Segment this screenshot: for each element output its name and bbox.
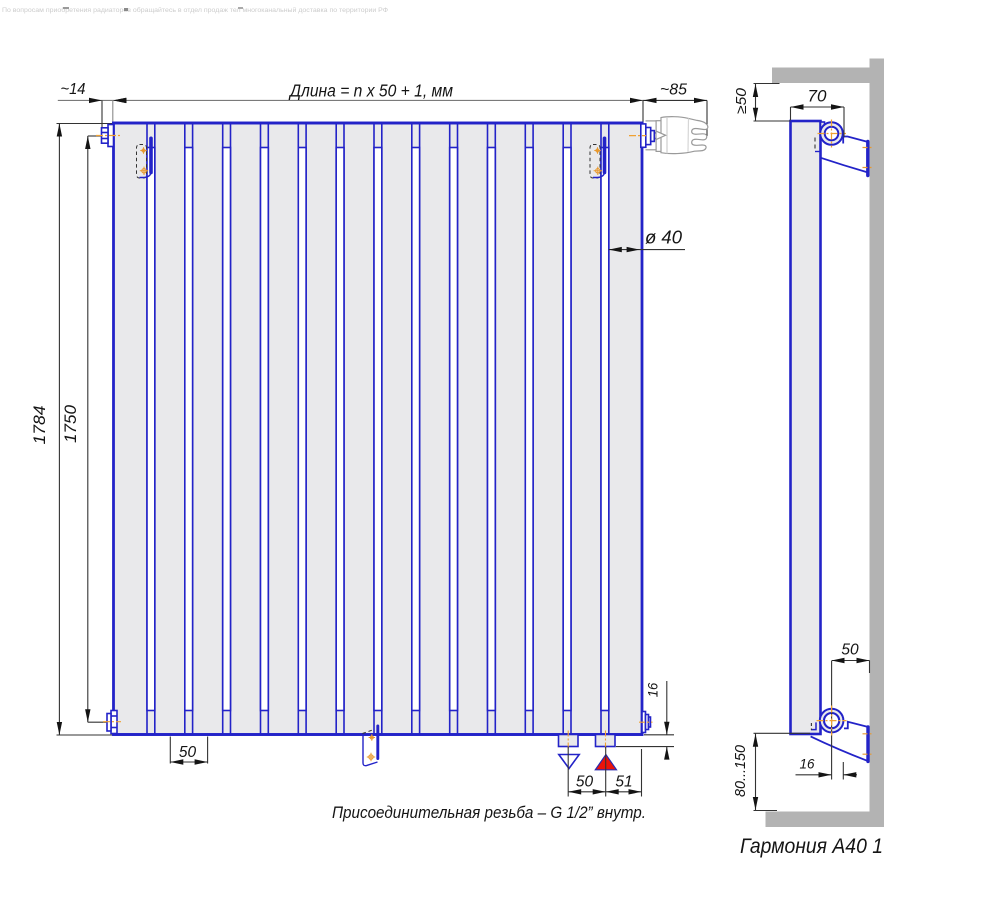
svg-text:50: 50 xyxy=(841,642,859,659)
svg-text:1750: 1750 xyxy=(62,404,80,443)
svg-text:16: 16 xyxy=(800,757,815,772)
svg-text:Длина = n x 50 + 1, мм: Длина = n x 50 + 1, мм xyxy=(288,81,453,101)
svg-text:ø 40: ø 40 xyxy=(645,228,682,248)
svg-text:50: 50 xyxy=(179,744,197,761)
svg-text:Гармония А40 1: Гармония А40 1 xyxy=(740,835,883,858)
svg-text:Присоединительная резьба – G 1: Присоединительная резьба – G 1/2” внутр. xyxy=(332,804,646,822)
svg-text:70: 70 xyxy=(808,87,827,106)
svg-text:≥50: ≥50 xyxy=(734,88,750,114)
svg-text:По вопросам приобретения радиа: По вопросам приобретения радиаторов обра… xyxy=(2,6,388,14)
svg-text:~14: ~14 xyxy=(61,81,86,98)
svg-text:16: 16 xyxy=(646,682,661,697)
svg-text:~85: ~85 xyxy=(660,82,687,99)
svg-text:80...150: 80...150 xyxy=(733,745,749,797)
svg-text:51: 51 xyxy=(615,774,632,791)
svg-text:1784: 1784 xyxy=(31,406,49,445)
svg-text:50: 50 xyxy=(576,774,594,791)
